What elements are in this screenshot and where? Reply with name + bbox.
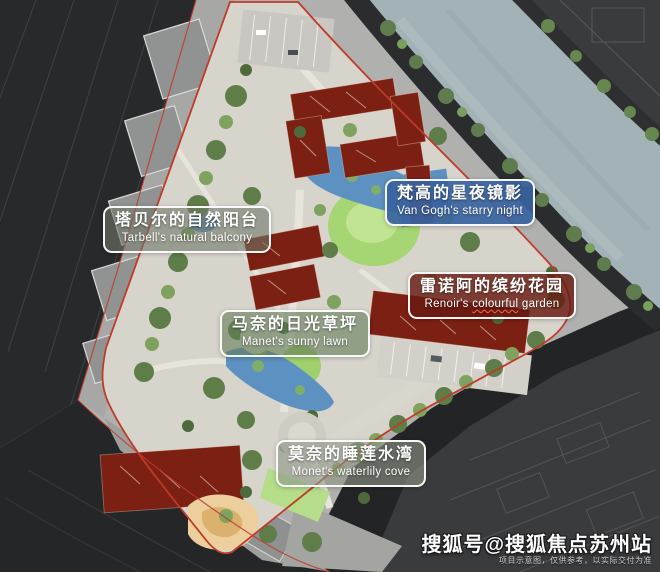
spellcheck-underlined-word: colourful — [472, 298, 518, 310]
label-vangogh-zh: 梵高的星夜镜影 — [397, 184, 523, 204]
label-vangogh-en: Van Gogh's starry night — [397, 204, 523, 219]
label-manet-zh: 马奈的日光草坪 — [232, 315, 358, 335]
label-renoir-en: Renoir's colourful garden — [420, 297, 564, 312]
label-monet-zh: 莫奈的睡莲水湾 — [288, 445, 414, 465]
site-plan-rendering: 塔贝尔的自然阳台 Tarbell's natural balcony 梵高的星夜… — [0, 0, 660, 572]
label-vangogh-starry-night: 梵高的星夜镜影 Van Gogh's starry night — [385, 179, 535, 226]
label-monet-en: Monet's waterlily cove — [288, 465, 414, 480]
label-tarbell-natural-balcony: 塔贝尔的自然阳台 Tarbell's natural balcony — [103, 206, 271, 253]
label-monet-waterlily-cove: 莫奈的睡莲水湾 Monet's waterlily cove — [276, 440, 426, 487]
north-parking — [237, 9, 334, 72]
label-manet-sunny-lawn: 马奈的日光草坪 Manet's sunny lawn — [220, 310, 370, 357]
sohu-watermark-text: 搜狐号@搜狐焦点苏州站 — [421, 534, 652, 556]
label-manet-en: Manet's sunny lawn — [232, 335, 358, 350]
sohu-watermark: 搜狐号@搜狐焦点苏州站 项目示意图，仅供参考，以实际交付为准 — [421, 534, 652, 566]
label-tarbell-en: Tarbell's natural balcony — [115, 231, 259, 246]
disclaimer-text: 项目示意图，仅供参考，以实际交付为准 — [421, 556, 652, 566]
label-tarbell-zh: 塔贝尔的自然阳台 — [115, 211, 259, 231]
label-renoir-colourful-garden: 雷诺阿的缤纷花园 Renoir's colourful garden — [408, 272, 576, 319]
label-renoir-zh: 雷诺阿的缤纷花园 — [420, 277, 564, 297]
